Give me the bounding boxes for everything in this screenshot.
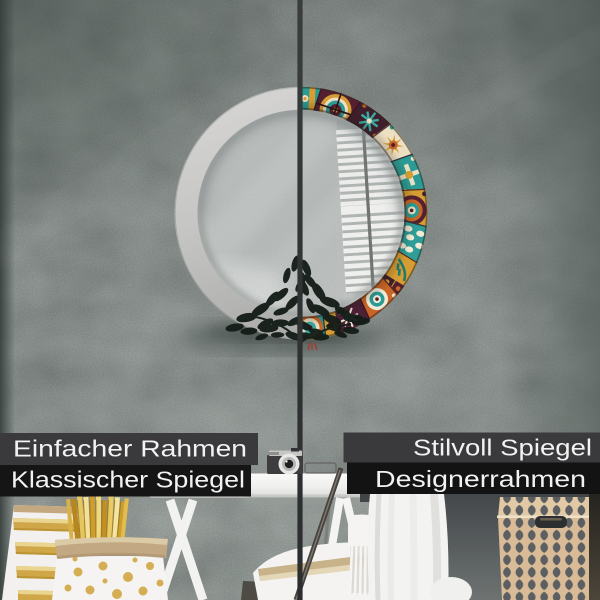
svg-text:Einfacher Rahmen: Einfacher Rahmen — [13, 436, 247, 462]
svg-text:Stilvoll Spiegel: Stilvoll Spiegel — [413, 435, 592, 461]
svg-text:Designerrahmen: Designerrahmen — [375, 466, 586, 492]
svg-text:Klassischer Spiegel: Klassischer Spiegel — [11, 467, 245, 493]
